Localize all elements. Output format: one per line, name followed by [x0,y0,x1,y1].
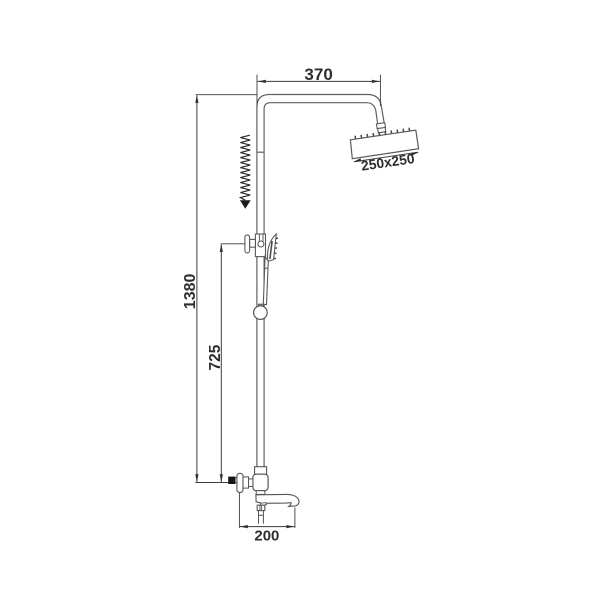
svg-text:200: 200 [254,527,279,544]
svg-text:370: 370 [304,65,332,84]
svg-text:725: 725 [207,344,224,370]
svg-text:1380: 1380 [182,274,199,310]
